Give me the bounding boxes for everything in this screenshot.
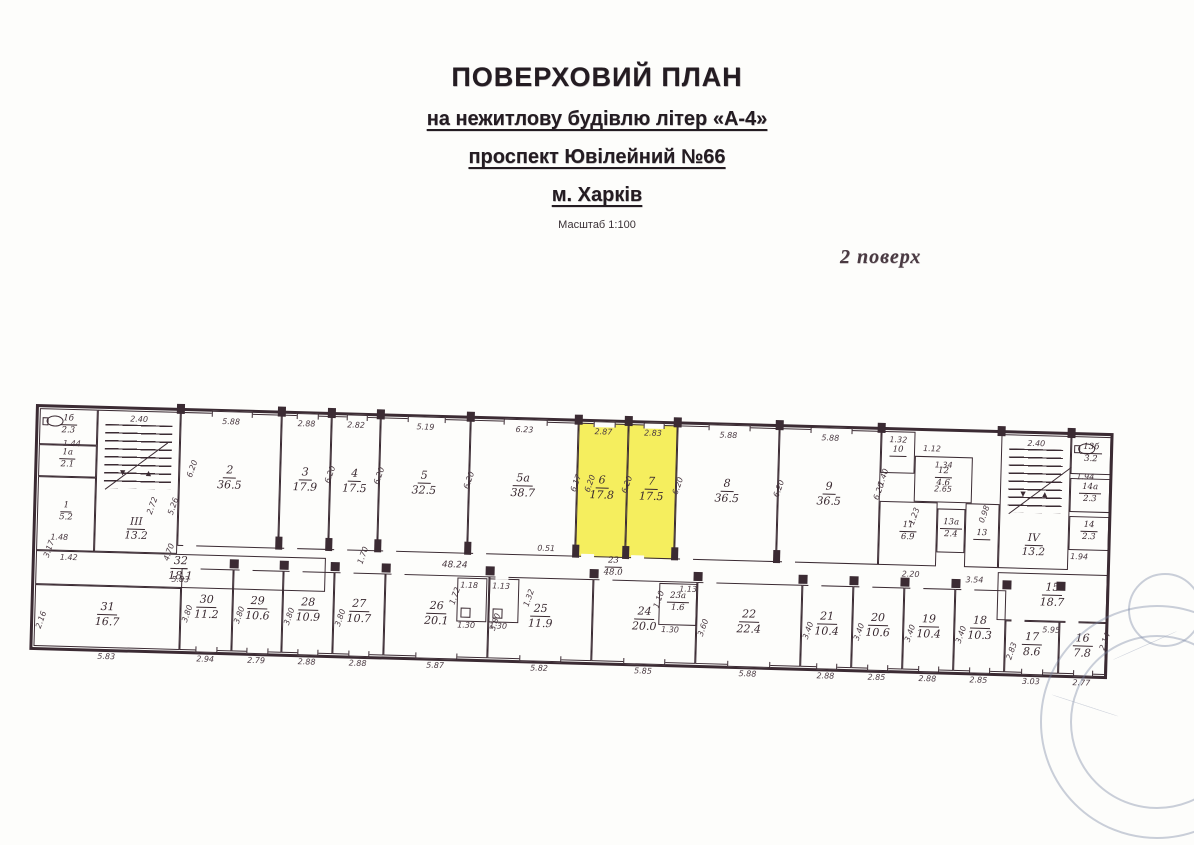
window-symbol <box>519 655 562 662</box>
corridor-pier <box>622 546 629 559</box>
corridor-pier <box>1056 582 1065 591</box>
room-number: 5а <box>513 472 533 487</box>
dimension-label: 5.19 <box>416 422 434 431</box>
room-area: 17.5 <box>639 490 664 504</box>
room-area: 2.3 <box>60 425 77 436</box>
room-area: 11.9 <box>528 617 553 631</box>
stair-down-arrow: ▼ <box>1018 488 1027 498</box>
room-12: 1.34124.62.65 <box>914 456 973 504</box>
stair-down-arrow: ▼ <box>118 467 127 477</box>
title-address-line: проспект Ювілейний №66 <box>0 146 1194 169</box>
door-opening <box>782 559 795 564</box>
room-number: 28 <box>298 596 318 611</box>
toilet-icon <box>46 415 63 426</box>
window-symbol <box>623 658 666 665</box>
room-number: 14а <box>1079 483 1101 495</box>
room-number: 13 <box>973 529 990 541</box>
window-symbol <box>816 663 838 670</box>
room-label: 3011.2 <box>194 594 219 622</box>
room-5: 5.19532.5 <box>377 417 471 553</box>
stair-up-arrow: ▲ <box>1040 489 1049 499</box>
stamp-mark <box>1052 694 1119 717</box>
room-5a: 6.235а38.7 <box>467 420 579 557</box>
room-label: 2810.9 <box>295 596 320 624</box>
dimension-label: 5.88 <box>821 433 839 442</box>
window-symbol <box>247 648 268 655</box>
room-label: 13 <box>973 529 990 541</box>
dimension-label: 3.80 <box>333 608 347 628</box>
corridor-pier <box>572 545 579 558</box>
dimension-label: 5.95 <box>1042 625 1060 634</box>
wall-pier <box>467 412 475 422</box>
corridor-length-dimension: 48.24 <box>442 560 468 571</box>
room-area: 7.8 <box>1072 646 1092 660</box>
door-opening <box>473 551 486 556</box>
room-area: 36.5 <box>816 494 841 508</box>
stairwell-3: 2.40▼▲III13.2 <box>94 410 181 554</box>
room-number: 6 <box>595 474 608 488</box>
wall-pier <box>278 407 286 417</box>
room-label: 5а38.7 <box>510 472 535 500</box>
corridor-pier <box>374 539 381 552</box>
door-opening <box>703 580 716 585</box>
door-opening <box>581 554 594 559</box>
room-area: 10.3 <box>967 629 992 643</box>
door-opening <box>859 584 872 589</box>
room-area: 11.2 <box>194 608 219 622</box>
dimension-label: 3.40 <box>801 621 815 641</box>
dimension-label: 1.12 <box>923 444 941 453</box>
room-number: 21 <box>817 610 837 625</box>
room-15: 1518.75.95 <box>997 572 1108 623</box>
dimension-label: 2.87 <box>594 427 612 436</box>
dimension-label: 2.94 <box>196 654 214 663</box>
room-label: 1810.3 <box>967 614 992 642</box>
stair-treads <box>1007 448 1063 513</box>
dimension-label: 2.40 <box>1027 439 1045 448</box>
room-number: 26 <box>426 600 446 615</box>
room-area: 2.3 <box>1079 494 1101 505</box>
room-28: 2810.92.883.80 <box>281 571 334 654</box>
dimension-label: 2.88 <box>816 671 834 680</box>
room-label: 236.5 <box>217 464 242 492</box>
door-opening <box>599 577 612 582</box>
room-31: 3116.75.832.16 <box>33 584 181 650</box>
room-21: 2110.42.883.40 <box>800 585 853 668</box>
door-opening <box>910 586 923 591</box>
room-label: 836.5 <box>714 478 739 506</box>
dimension-label: 5.88 <box>222 417 240 426</box>
door-opening <box>334 547 347 552</box>
room-number: 1а <box>59 448 76 460</box>
room-number: 18 <box>970 615 990 630</box>
room-10: 1.3210 <box>880 431 915 474</box>
room-label: 14а2.3 <box>1079 483 1101 505</box>
corridor-pier <box>1002 580 1011 589</box>
room-area: 10.6 <box>245 609 270 623</box>
room-area: 20.1 <box>424 614 449 628</box>
room-area: 22.4 <box>736 622 761 636</box>
stair-up-arrow: ▲ <box>144 468 153 478</box>
door-opening <box>1065 620 1078 625</box>
room-14a: 14а2.3 <box>1069 478 1110 513</box>
dimension-label: 2.20 <box>902 569 920 578</box>
dimension-label: 3.03 <box>1022 677 1040 686</box>
window-symbol <box>415 652 458 659</box>
door-opening <box>495 574 508 579</box>
room-number: 2 <box>223 464 236 478</box>
room-area: 8.6 <box>1021 645 1041 659</box>
page-title: ПОВЕРХОВИЙ ПЛАН <box>0 62 1194 93</box>
window-symbol <box>297 649 319 656</box>
room-number: 4 <box>348 468 361 482</box>
door-opening <box>284 546 297 551</box>
corridor-pier <box>589 569 598 578</box>
room-3: 2.88317.9 <box>278 415 332 550</box>
room-number: 22 <box>739 608 759 623</box>
wall-pier <box>377 409 385 419</box>
room-number: 30 <box>197 594 217 609</box>
room-label: 23а1.6 <box>667 592 689 614</box>
dimension-label: 5.87 <box>426 661 444 670</box>
room-number: 5 <box>417 470 430 484</box>
floor-number-note: 2 поверх <box>840 246 921 269</box>
stairwell-area: 13.2 <box>1022 545 1046 558</box>
corridor-pier <box>900 577 909 586</box>
stairwell-area: 13.2 <box>124 529 148 542</box>
room-area: 17.8 <box>589 488 614 502</box>
dimension-label: 1.48 <box>50 532 68 541</box>
corridor-number: 23 <box>605 555 622 567</box>
dimension-label: 3.80 <box>282 607 296 627</box>
window-symbol <box>348 651 370 658</box>
room-number: 1 <box>60 501 72 513</box>
dimension-label: 5.85 <box>634 666 652 675</box>
room-label: 2420.0 <box>632 605 657 633</box>
room-2: 5.88236.5 <box>177 412 282 549</box>
room-number: 31 <box>97 601 117 616</box>
room-number: 19 <box>919 613 939 628</box>
corridor-pier <box>230 559 239 568</box>
room-label: 532.5 <box>411 469 436 497</box>
room-11: 116.9 <box>878 501 938 567</box>
wall-pier <box>878 423 886 433</box>
room-label: 3116.7 <box>95 601 120 629</box>
wall-pier <box>328 408 336 418</box>
corridor-pier <box>773 550 780 563</box>
door-opening <box>183 543 196 548</box>
dimension-label: 2.88 <box>298 419 316 428</box>
corridor-area: 48.0 <box>604 567 623 578</box>
stairwell-4: 2.40▼▲IV13.2 <box>998 434 1072 570</box>
dimension-label: 5.82 <box>530 663 548 672</box>
room-label: 717.5 <box>639 476 664 504</box>
dimension-label: 1.32 <box>889 435 907 444</box>
door-opening <box>340 570 353 575</box>
door-opening <box>383 548 396 553</box>
room-number: 13а <box>940 518 962 530</box>
room-label: 2010.6 <box>865 612 890 640</box>
room-label: 2910.6 <box>245 595 270 623</box>
room-area: 17.5 <box>342 482 367 496</box>
room-label: 936.5 <box>816 480 841 508</box>
dimension-label: 1.13 <box>492 581 510 590</box>
room-number: 14 <box>1081 521 1098 533</box>
door-opening <box>240 568 253 573</box>
dimension-label: 6.23 <box>515 425 533 434</box>
room-number: 24 <box>634 605 654 620</box>
room-number: 29 <box>248 595 268 610</box>
room-area: 10.4 <box>814 624 839 638</box>
dimension-label: 2.83 <box>1004 641 1018 661</box>
room-area: 17.9 <box>292 480 317 494</box>
corridor-pier <box>798 575 807 584</box>
dimension-label: 1.18 <box>460 581 478 590</box>
stairwell-number: III <box>127 516 146 530</box>
dimension-label: 3.54 <box>965 575 983 584</box>
stairwell-label: IV13.2 <box>1022 532 1046 559</box>
room-label: 317.9 <box>292 466 317 494</box>
corridor-pier <box>280 561 289 570</box>
room-1a: 1а2.1 <box>38 444 97 478</box>
room-number: 17 <box>1022 631 1042 646</box>
wall-pier <box>575 415 583 425</box>
corridor-pier <box>331 562 340 571</box>
wall-pier <box>776 420 784 430</box>
room-label: 2620.1 <box>424 600 449 628</box>
dimension-label: 2.82 <box>347 420 365 429</box>
room-label: 2511.9 <box>528 603 553 631</box>
room-area: 6.9 <box>899 532 916 543</box>
floor-plan: 1б2.31а2.115.23218.15.833116.75.832.165.… <box>29 404 1113 679</box>
wall-pier <box>177 404 185 414</box>
dimension-label: 1.13 <box>679 584 697 593</box>
corridor-pier <box>464 542 471 555</box>
room-area: 2.4 <box>940 529 962 540</box>
title-building-line: на нежитлову будівлю літер «А-4» <box>0 108 1194 131</box>
room-label: 142.3 <box>1080 521 1097 543</box>
room-label: 15.2 <box>59 501 73 523</box>
dimension-label: 5.83 <box>97 652 115 661</box>
stamp-mark <box>1113 631 1177 660</box>
dimension-label: 2.83 <box>644 428 662 437</box>
stairwell-number: IV <box>1025 532 1043 546</box>
room-number: 3 <box>299 466 312 480</box>
room-label: 417.5 <box>342 467 367 495</box>
room-number: 9 <box>822 480 835 494</box>
dimension-label: 5.88 <box>738 669 756 678</box>
door-opening <box>188 566 201 571</box>
room-area: 36.5 <box>217 478 242 492</box>
dimension-label: 1.94 <box>1070 552 1088 561</box>
room-area: 2.1 <box>59 459 76 470</box>
dimension-label: 5.88 <box>719 431 737 440</box>
corridor-pier <box>275 537 282 550</box>
stamp-small-circle <box>1128 573 1194 647</box>
wall-pier <box>674 417 682 427</box>
door-opening <box>680 556 693 561</box>
door-opening <box>961 587 974 592</box>
room-area: 10.9 <box>295 610 320 624</box>
window-symbol <box>918 666 940 673</box>
dimension-label: 2.88 <box>918 674 936 683</box>
dimension-label: 3.40 <box>852 622 866 642</box>
dimension-label: 1.30 <box>457 620 475 629</box>
stair-treads <box>104 424 173 490</box>
corridor-pier <box>671 547 678 560</box>
room-area: 36.5 <box>714 492 739 506</box>
dimension-label: 1.42 <box>60 553 78 562</box>
room-area: 10.7 <box>346 612 371 626</box>
title-block: ПОВЕРХОВИЙ ПЛАН на нежитлову будівлю літ… <box>0 62 1194 231</box>
room-29: 2910.62.793.80 <box>231 569 283 652</box>
room-area: 10.4 <box>916 627 941 641</box>
dimension-label: 1.44 <box>63 439 81 448</box>
room-number: 10 <box>889 446 906 458</box>
room-label: 1910.4 <box>916 613 941 641</box>
stairwell-label: III13.2 <box>124 515 148 542</box>
dimension-label: 2.85 <box>969 675 987 684</box>
room-label: 2710.7 <box>346 598 371 626</box>
dimension-label: 3.40 <box>954 625 968 645</box>
dimension-label: 1.94 <box>1076 472 1094 481</box>
room-area: 1.6 <box>667 603 689 614</box>
dimension-label: 2.65 <box>934 485 952 494</box>
title-city-line: м. Харків <box>0 184 1194 207</box>
door-opening <box>391 572 404 577</box>
dimension-label: 1.30 <box>489 621 507 630</box>
window-symbol <box>1021 669 1044 676</box>
door-opening <box>289 569 302 574</box>
dimension-label: 2.40 <box>130 415 148 424</box>
dimension-label: 3.80 <box>180 604 194 624</box>
room-18: 1810.32.853.40 <box>953 589 1006 672</box>
dimension-label: 1.34 <box>935 460 953 469</box>
door-opening <box>631 555 644 560</box>
room-area: 16.7 <box>95 615 120 629</box>
room-14: 142.3 <box>1068 516 1109 551</box>
room-number: 27 <box>349 598 369 613</box>
corridor-pier <box>325 538 332 551</box>
dimension-label: 2.79 <box>247 656 265 665</box>
room-4: 2.82417.5 <box>328 416 381 551</box>
room-number: 8 <box>720 478 733 492</box>
window-symbol <box>867 665 889 672</box>
toilet-icon <box>1078 443 1095 454</box>
room-area: 20.0 <box>632 620 657 634</box>
door-opening <box>1011 618 1024 623</box>
dimension-label: 3.60 <box>696 618 710 638</box>
corridor-pier <box>486 566 495 575</box>
window-symbol <box>727 661 770 668</box>
room-area: 3.2 <box>1080 454 1102 465</box>
room-area: 32.5 <box>411 484 436 498</box>
room-label: 178.6 <box>1021 631 1042 659</box>
room-area: 18.7 <box>1040 596 1065 610</box>
corridor-label: 2348.0 <box>604 555 624 578</box>
wall-pier <box>625 416 633 426</box>
window-symbol <box>969 667 991 674</box>
wall-pier <box>1067 428 1075 438</box>
door-opening <box>808 583 821 588</box>
corridor-pier <box>382 563 391 572</box>
room-label: 10 <box>889 446 906 458</box>
scanned-floor-plan-page: { "title": { "line1": "ПОВЕРХОВИЙ ПЛАН",… <box>0 0 1194 766</box>
dimension-label: 2.77 <box>1072 678 1090 687</box>
room-number: 16 <box>1072 632 1092 647</box>
corridor-pier <box>849 576 858 585</box>
room-9: 5.88936.5 <box>776 428 882 565</box>
dimension-label: 3.40 <box>903 623 917 643</box>
room-label: 2222.4 <box>736 608 761 636</box>
window-symbol <box>1073 670 1093 677</box>
room-label: 2110.4 <box>814 610 839 638</box>
corridor-pier <box>951 579 960 588</box>
room-13b: 13б3.2 <box>1070 436 1111 475</box>
dimension-label: 2.16 <box>34 610 48 630</box>
room-19: 1910.42.883.40 <box>902 588 955 671</box>
corridor-pier <box>693 572 702 581</box>
room-area: 5.2 <box>59 512 73 523</box>
dimension-label: 0.51 <box>537 544 555 553</box>
room-label: 13а2.4 <box>940 518 962 540</box>
room-20: 2010.62.853.40 <box>851 586 904 669</box>
room-number: 25 <box>530 603 550 618</box>
room-label: 1а2.1 <box>59 448 76 470</box>
room-22: 2222.45.883.60 <box>695 582 802 667</box>
room-27: 2710.72.883.80 <box>332 572 385 655</box>
room-area: 10.6 <box>865 626 890 640</box>
room-8: 5.88836.5 <box>674 425 780 562</box>
dimension-label: 1.30 <box>661 625 679 634</box>
room-number: 7 <box>645 476 658 490</box>
dimension-label: 2.85 <box>867 673 885 682</box>
scale-label: Масштаб 1:100 <box>0 219 1194 231</box>
room-13a: 13а2.4 <box>936 508 965 553</box>
dimension-label: 2.88 <box>298 657 316 666</box>
room-label: 167.8 <box>1072 632 1093 660</box>
room-30: 3011.22.943.80 <box>179 568 233 651</box>
room-area: 38.7 <box>510 486 535 500</box>
room-number: 20 <box>868 612 888 627</box>
dimension-label: 2.88 <box>349 659 367 668</box>
room-area: 2.3 <box>1080 532 1097 543</box>
window-symbol <box>195 646 217 653</box>
wall-pier <box>997 426 1005 436</box>
